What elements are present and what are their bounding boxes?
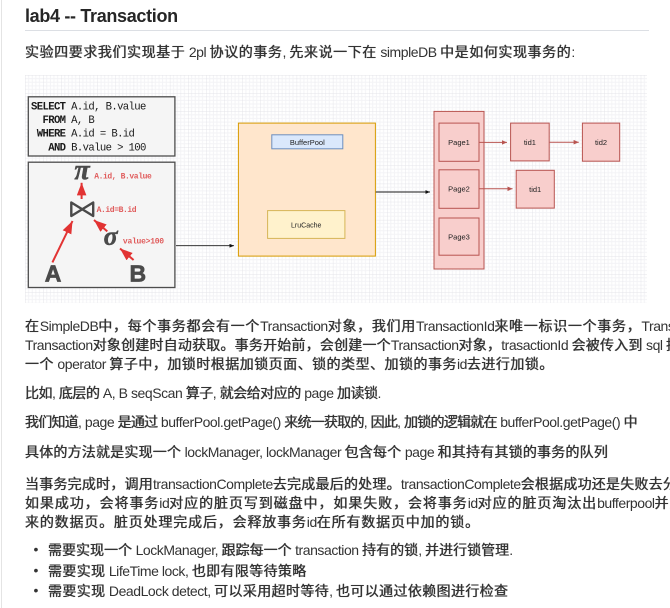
svg-text:tid2: tid2 [595,138,607,147]
svg-text:Page2: Page2 [448,185,470,194]
svg-text:SELECT A.id, B.value FROM A,: SELECT A.id, B.value FROM A, B WHERE A.i… [31,101,146,154]
svg-text:A.id, B.value: A.id, B.value [94,173,152,182]
svg-text:π: π [74,155,90,186]
svg-text:A: A [45,261,62,287]
svg-text:LruCache: LruCache [291,222,321,229]
svg-text:tid1: tid1 [529,185,541,194]
svg-text:B: B [129,261,146,287]
svg-text:Page1: Page1 [448,138,470,147]
svg-text:Page3: Page3 [448,233,470,242]
svg-text:value>100: value>100 [123,237,164,246]
svg-text:BufferPool: BufferPool [290,138,325,147]
svg-text:A.id=B.id: A.id=B.id [97,206,137,215]
svg-text:tid1: tid1 [524,138,536,147]
svg-text:σ: σ [104,222,119,251]
